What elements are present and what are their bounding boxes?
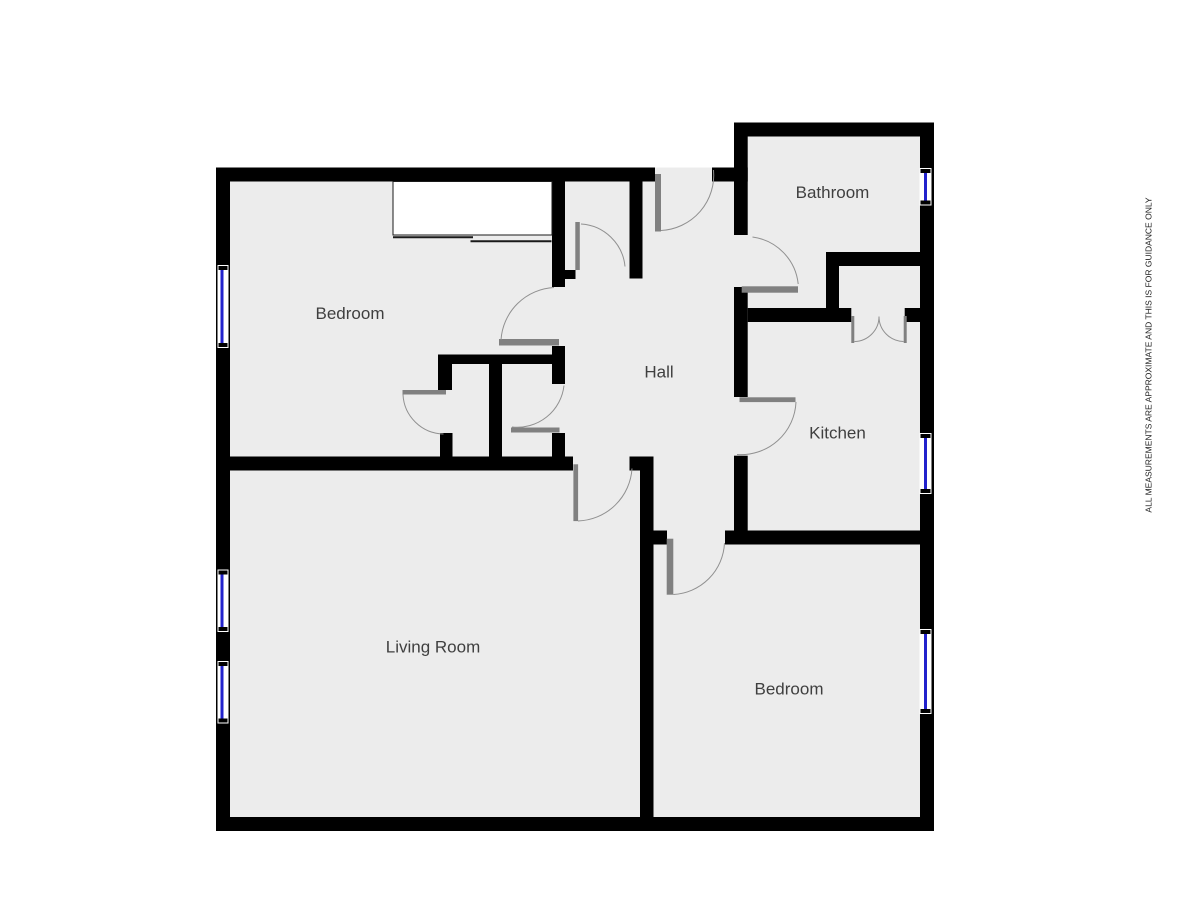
svg-text:Bedroom: Bedroom [755, 680, 824, 699]
svg-text:ALL MEASUREMENTS ARE APPROXIMA: ALL MEASUREMENTS ARE APPROXIMATE AND THI… [1144, 197, 1154, 513]
svg-text:Hall: Hall [644, 363, 673, 382]
svg-text:Bedroom: Bedroom [316, 304, 385, 323]
svg-text:Living Room: Living Room [386, 638, 481, 657]
svg-text:Bathroom: Bathroom [796, 183, 870, 202]
svg-text:Kitchen: Kitchen [809, 424, 866, 443]
